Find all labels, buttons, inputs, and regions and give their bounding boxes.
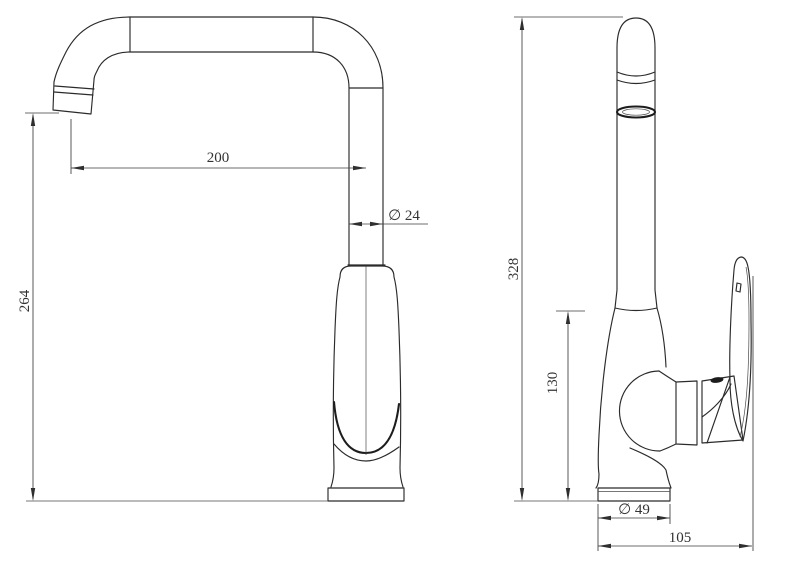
aerator-tip-outline [53,80,94,114]
spout-ring-upper [617,72,655,76]
dim-200-arrow-left [71,166,84,170]
dim-49-arrow-right [657,516,670,520]
dim-body-height-label: 130 [545,372,561,395]
dim-spout-reach-label: 200 [207,150,230,166]
tube-left-edge [615,48,617,308]
dim-overall-depth-label: 105 [669,530,692,546]
dim-pipe-diameter-label: ∅ 24 [388,208,420,224]
aerator-band-line-2 [54,92,93,95]
front-view [514,18,751,501]
tube-right-edge [655,48,657,308]
tube-dome [617,18,655,48]
side-view [26,17,404,501]
faucet-technical-drawing: 264 200 ∅ 24 [0,0,800,568]
ball-to-valve-top-line [659,371,676,382]
dim-264-arrow-down [31,488,35,501]
handle-hub-outline [702,376,743,443]
body-right-upper-edge [657,308,666,367]
aerator-band-line-1 [55,86,94,89]
cartridge-ball-arc [619,371,660,451]
neck-joint-curve [615,308,657,311]
dim-264-arrow-up [31,113,35,126]
dim-24-arrow-left [349,222,362,226]
dim-105-arrow-right [739,544,752,548]
handle-notch [736,283,741,292]
dim-328-arrow-down [520,488,524,501]
handle-hub-arc [702,384,731,417]
dim-328-arrow-up [520,17,524,30]
valve-band [676,381,697,445]
aerator-ellipse-inner [623,109,650,115]
dim-outlet-height-label: 264 [17,289,33,312]
dim-base-diameter-label: ∅ 49 [618,502,650,518]
spout-ring-lower [617,80,655,84]
body-lower-right-curve [630,448,671,488]
dim-49-arrow-left [598,516,611,520]
dim-130-arrow-up [566,311,570,324]
dim-total-height-label: 328 [506,258,522,281]
body-u-collar-curve [334,402,399,453]
front-view-dimensions: 328 130 ∅ 49 105 [506,17,753,551]
dim-105-arrow-left [598,544,611,548]
dim-200-arrow-right [353,166,366,170]
ball-to-valve-bottom-line [660,444,676,451]
spout-outer-profile [54,17,383,265]
base-flange-front [598,488,670,501]
dim-24-arrow-right [370,222,383,226]
body-left-edge [596,308,615,488]
technical-drawing-canvas: 264 200 ∅ 24 [0,0,800,568]
base-flange-side [328,488,404,501]
dim-130-arrow-down [566,488,570,501]
